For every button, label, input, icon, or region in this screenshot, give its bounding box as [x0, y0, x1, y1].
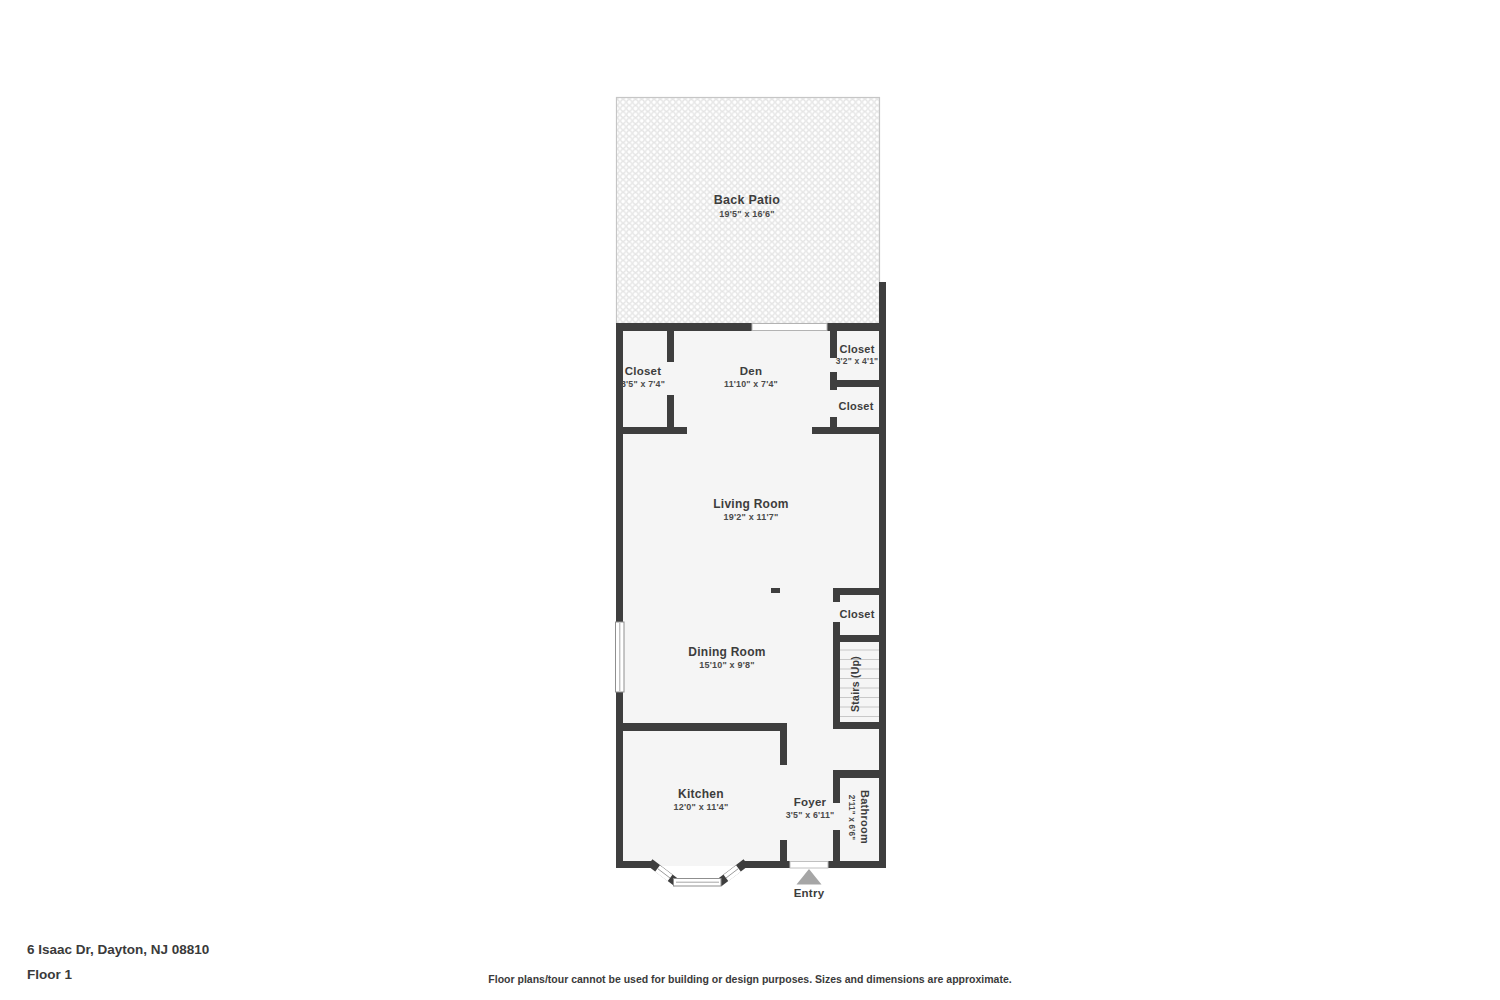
room-label-closet-left: Closet — [625, 365, 662, 377]
wall-segment — [833, 722, 886, 729]
wall-segment — [616, 692, 623, 868]
wall-segment — [833, 595, 840, 602]
wall-segment — [830, 331, 837, 358]
room-label-back-patio: Back Patio — [714, 193, 781, 207]
wall-segment — [667, 331, 674, 362]
room-label-living-room: Living Room — [713, 497, 788, 511]
room-dims-closet-left: 3'5" x 7'4" — [621, 379, 665, 389]
wall-segment — [833, 830, 840, 868]
wall-stub — [771, 588, 780, 593]
wall-segment — [830, 417, 837, 433]
entry-label: Entry — [794, 887, 825, 899]
room-label-bathroom: Bathroom — [859, 790, 871, 844]
wall-segment — [833, 642, 840, 728]
disclaimer-text: Floor plans/tour cannot be used for buil… — [0, 973, 1500, 985]
room-dims-den: 11'10" x 7'4" — [724, 379, 778, 389]
wall-segment — [616, 861, 652, 868]
patio-door — [752, 324, 827, 331]
room-label-dining-room: Dining Room — [688, 645, 765, 659]
room-label-den: Den — [740, 365, 762, 377]
floor-plan-drawing: Back Patio 19'5" x 16'6" Closet 3'5" x 7… — [0, 0, 1500, 1000]
wall-segment — [812, 427, 886, 434]
wall-segment — [830, 372, 837, 390]
wall-segment — [833, 778, 840, 803]
wall-segment — [616, 723, 787, 731]
wall-segment — [616, 323, 752, 331]
room-dims-dining-room: 15'10" x 9'8" — [699, 660, 754, 670]
entry-arrow-icon — [797, 869, 822, 885]
wall-segment — [616, 323, 623, 622]
address-text: 6 Isaac Dr, Dayton, NJ 08810 — [27, 942, 209, 957]
wall-segment — [879, 282, 886, 868]
wall-segment — [833, 770, 886, 778]
wall-segment — [780, 840, 787, 868]
wall-segment — [833, 588, 886, 595]
room-dims-closet-top-right: 3'2" x 4'1" — [836, 356, 879, 366]
room-dims-bathroom: 2'11" x 6'6" — [847, 795, 856, 840]
wall-segment — [833, 635, 886, 642]
wall-segment — [827, 323, 886, 331]
wall-segment — [780, 731, 787, 765]
entry-threshold — [790, 862, 828, 869]
room-label-closet-mid-right: Closet — [839, 608, 874, 620]
floor-plan-page: Back Patio 19'5" x 16'6" Closet 3'5" x 7… — [0, 0, 1500, 1000]
room-dims-kitchen: 12'0" x 11'4" — [674, 802, 729, 812]
room-label-closet-top-right: Closet — [839, 343, 874, 355]
room-label-stairs: Stairs (Up) — [849, 656, 861, 712]
room-label-foyer: Foyer — [794, 796, 827, 808]
room-label-kitchen: Kitchen — [678, 787, 724, 801]
wall-segment — [837, 380, 886, 387]
room-dims-foyer: 3'5" x 6'11" — [786, 810, 835, 820]
room-label-closet-right-2: Closet — [838, 400, 873, 412]
room-dims-back-patio: 19'5" x 16'6" — [719, 209, 774, 219]
room-dims-living-room: 19'2" x 11'7" — [724, 512, 779, 522]
wall-segment — [616, 427, 687, 434]
